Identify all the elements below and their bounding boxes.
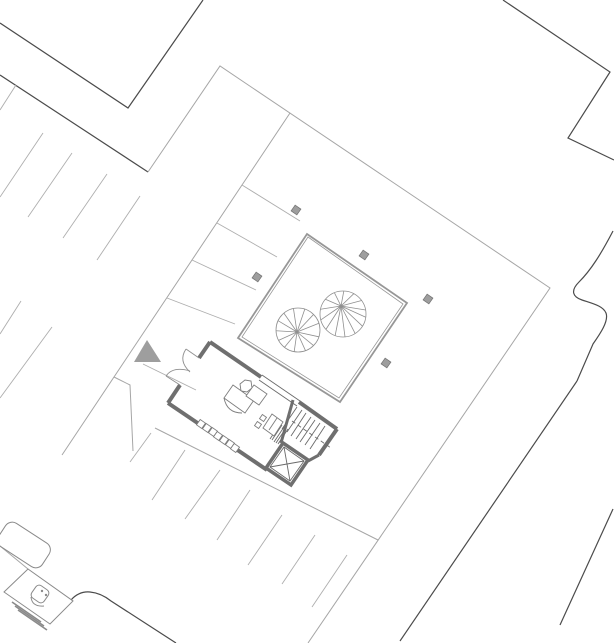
triangle-marker — [134, 340, 161, 362]
road-curve-southwest — [71, 592, 176, 643]
window-line-outer — [262, 375, 300, 401]
stair-tread — [305, 423, 320, 445]
parking-stalls-14 — [185, 470, 220, 519]
parking-stalls-2 — [28, 153, 72, 217]
fixture-dot — [45, 594, 47, 596]
parking-stalls-8 — [217, 223, 277, 257]
door-swing-north — [183, 349, 190, 372]
parking-stalls-18 — [312, 555, 347, 607]
stair-tread — [291, 413, 306, 436]
parking-stalls-9 — [192, 260, 256, 290]
building-outline-northeast — [503, 0, 614, 160]
building-edge-west — [0, 75, 148, 172]
site-plan-drawing — [0, 0, 614, 643]
deck-inner-edge — [242, 237, 403, 398]
parking-stalls-17 — [282, 535, 315, 584]
door-swing-south — [166, 369, 190, 376]
parking-stalls-5 — [0, 301, 21, 334]
courtyard-deck — [238, 234, 407, 402]
trees — [276, 291, 366, 352]
building-outline-northwest — [0, 0, 203, 108]
column-marker — [423, 294, 433, 304]
road-curve-east — [574, 231, 613, 381]
deck-outer-edge — [238, 234, 407, 402]
furniture — [196, 380, 283, 453]
stall-pad — [4, 569, 73, 624]
wall-west-lower — [168, 385, 180, 403]
road-edge-long — [400, 381, 577, 641]
parking-stalls-11 — [143, 364, 196, 390]
columns — [252, 205, 433, 368]
column-marker — [252, 272, 262, 282]
equipment-box — [255, 422, 262, 429]
step-hatch — [18, 610, 47, 630]
tree-symbol-east — [320, 291, 366, 337]
parking-stalls-10 — [167, 298, 235, 324]
door-leaf-north — [186, 349, 199, 358]
fixture-dot — [41, 590, 43, 592]
parking-stalls-4 — [97, 196, 140, 260]
parking-stalls-16 — [248, 515, 282, 565]
column-marker — [381, 358, 391, 368]
building-walls — [168, 342, 337, 485]
stair-tread — [300, 420, 315, 442]
aisle-line-west — [62, 113, 290, 455]
column-marker — [291, 205, 301, 215]
parking-stalls-3 — [63, 174, 107, 238]
parking-stalls-0 — [0, 85, 16, 110]
step-hatch — [15, 606, 44, 626]
column-marker — [359, 250, 369, 260]
parking-stalls-15 — [217, 490, 250, 540]
stair-tread — [310, 426, 325, 449]
stair-tread — [296, 417, 311, 439]
doors — [166, 349, 199, 385]
parking-stalls-13 — [152, 450, 185, 500]
road-edge-short — [560, 509, 613, 625]
parcel-boundary — [148, 66, 550, 643]
equipment-box — [260, 415, 267, 422]
site-fixtures-southwest — [0, 519, 73, 630]
aisle-line-south — [155, 428, 378, 540]
entrance-marker — [134, 340, 161, 362]
site-boundaries — [0, 66, 550, 643]
walk-edge-southwest — [0, 546, 28, 569]
parking-stalls-6 — [0, 327, 52, 398]
tree-symbol-west — [276, 308, 320, 352]
site-plan-page — [0, 0, 614, 643]
parking-stalls-1 — [0, 133, 43, 197]
parking-stalls-7 — [242, 185, 300, 221]
door-leaf-south — [166, 376, 180, 385]
entry-walk-edge — [114, 377, 133, 451]
wall-west-upper — [199, 342, 210, 358]
parked-car — [0, 519, 53, 571]
